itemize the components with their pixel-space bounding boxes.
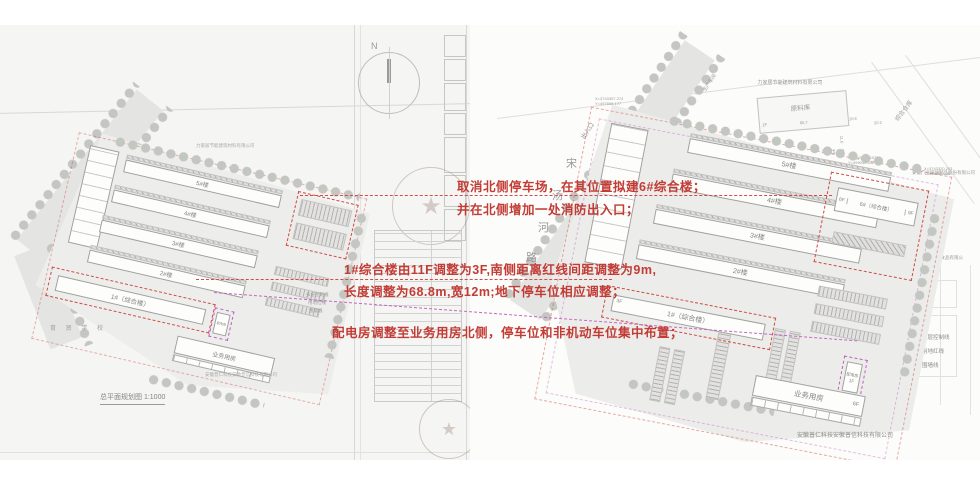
- left-site-group: 5#楼 4#楼 3#楼 2#楼 1#（综合楼） 配电房 业务用房: [0, 120, 379, 434]
- building-4-label: 4#楼: [183, 208, 197, 220]
- building-2-label: 2#楼: [732, 265, 748, 278]
- right-bottom-company: 安徽普仁科技安徽普信科技有限公司: [745, 433, 945, 441]
- service-building-floor: 6F: [852, 401, 859, 408]
- annotation-2-line-1: 1#综合楼由11F调整为3F,南侧距离红线间距调整为9m,: [344, 259, 656, 278]
- building-5-label: 5#楼: [781, 159, 797, 172]
- site-plan-comparison: N ★ ★: [0, 0, 980, 485]
- left-plan: N ★ ★: [0, 25, 470, 460]
- building-3-label: 3#楼: [171, 238, 185, 250]
- dim-label: 10.6: [849, 116, 857, 122]
- school-label: 育 贤 学 校: [50, 326, 107, 334]
- stamp-star-icon: ★: [441, 419, 457, 440]
- road-name-char: 河: [538, 222, 549, 236]
- annotation-3-line-1: 配电房调整至业务用房北侧，停车位和非机动车位集中布置；: [332, 322, 683, 341]
- legend-item: 围墙线: [309, 308, 323, 314]
- building-2-label: 2#楼: [159, 268, 173, 280]
- approval-stamp-lower: ★: [419, 399, 470, 459]
- dim-label: 11.6: [839, 136, 845, 144]
- left-top-company: 力家居节能建筑材料有限公司: [196, 143, 255, 149]
- dim-label: 20.2: [874, 120, 882, 126]
- left-bottom-company: 安徽普仁科技安徽普信科技有限公司: [205, 372, 277, 378]
- power-house-label: 配电房: [846, 371, 859, 379]
- material-store-floor: 1F: [762, 122, 768, 128]
- material-store-building: 原料库 1F 86.7: [757, 90, 850, 134]
- leader-line-building1: [196, 279, 612, 280]
- annotation-1-line-2: 并在北侧增加一处消防出入口；: [457, 199, 639, 218]
- building-5-label: 5#楼: [195, 178, 209, 190]
- north-label: N: [371, 41, 378, 52]
- road-name-char: 宋: [566, 158, 577, 172]
- annotation-1-line-1: 取消北侧停车场，在其位置拟建6#综合楼；: [457, 176, 706, 195]
- page-edge-right: [466, 25, 467, 460]
- coord-label: X=3743357.274Y=497898.177: [595, 96, 623, 106]
- neighbor-company-top: 力家居节能建筑材料有限公司: [715, 80, 865, 86]
- building-6-red-box: [814, 172, 930, 281]
- indicator-table: [374, 230, 462, 402]
- north-arrow: [358, 52, 420, 114]
- north-axis: [389, 47, 390, 119]
- right-plan: 宋 汤 河 路 出入口 消防出入口 力家居节能建筑材料有限公司 原料库 1F 8…: [470, 25, 980, 460]
- power-house-label: 配电房: [216, 321, 226, 328]
- annotation-2-line-2: 长度调整为68.8m,宽12m;地下停车位相应调整；: [344, 281, 625, 300]
- service-building-label: 业务用房: [212, 349, 237, 363]
- service-building-label: 业务用房: [793, 388, 825, 405]
- left-plan-title: 总平面规划图 1:1000: [100, 394, 165, 405]
- building-4-label: 4#楼: [766, 195, 782, 208]
- dim-label: 86.7: [800, 120, 808, 126]
- material-store-label: 原料库: [790, 104, 810, 114]
- building-6-floor-right: 9F: [904, 210, 916, 218]
- building-3-label: 3#楼: [749, 230, 765, 243]
- leader-line-parking: [300, 195, 832, 196]
- page-edge-bottom: [0, 452, 470, 453]
- building-6-label: 6#（综合楼）: [847, 197, 906, 216]
- legend-item: 多层控制线: [306, 292, 329, 298]
- parcel-line: [970, 265, 971, 415]
